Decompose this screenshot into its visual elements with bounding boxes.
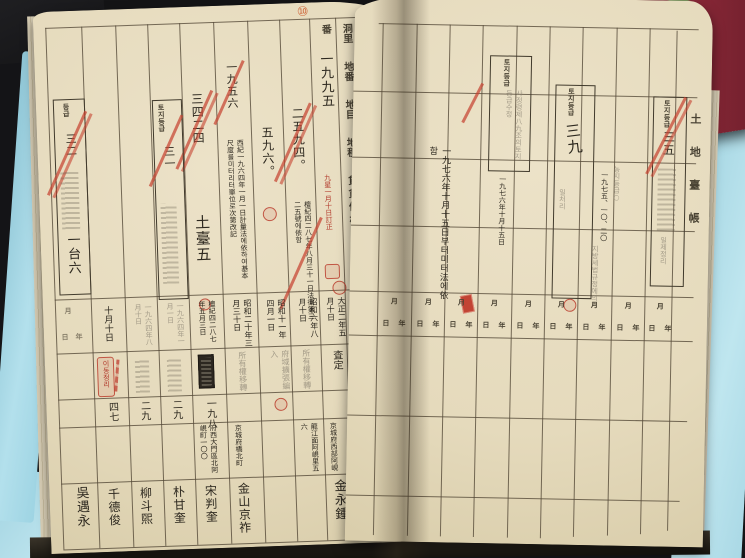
date-cell-day: 日 <box>548 322 558 329</box>
date-cell-month: 月 <box>556 301 566 308</box>
record-1-address: 龍江面阿峴里五六 <box>299 423 321 474</box>
record-7-date: 十月十日 <box>101 306 116 352</box>
record-0-address: 京城府西部阿峴 <box>328 422 340 472</box>
record-6-num: 二九 <box>136 400 152 421</box>
date-cell-day: 日 <box>448 320 458 327</box>
record-0-cause: 査定 <box>329 350 345 371</box>
record-7-name: 千德俊 <box>105 487 123 527</box>
date-cell-month: 月 <box>423 298 433 305</box>
red-seal <box>325 264 341 280</box>
date-cell: 月 日 年 <box>355 0 713 1</box>
date-cell-year: 年 <box>564 323 574 330</box>
grade-box-mid-label: 토지등급 <box>156 104 167 132</box>
date-cell: 月 日 年 <box>355 0 713 1</box>
printed-year: 年 <box>74 333 84 340</box>
grid-line <box>347 415 687 423</box>
date-cell-day: 日 <box>481 321 491 328</box>
faint-pencil-text <box>657 168 676 230</box>
date-cell-year: 年 <box>663 325 673 332</box>
date-cell-month: 月 <box>456 299 466 306</box>
photo-of-land-register: 土地臺帳 ⑩ 洞里 地番 地目 地積 賃貸價格 沿革 年月日 事故 住所 <box>0 0 745 558</box>
date-cell: 月 日 年 <box>355 0 713 1</box>
spine-metric-note: 一九七六年十月十五日부터미터法에依함 <box>429 146 452 306</box>
date-cell-day: 日 <box>615 324 625 331</box>
grid-line <box>407 24 418 536</box>
annex-sub-label: 농지등급○ <box>611 166 622 218</box>
date-cell-day: 日 <box>647 324 657 331</box>
record-5-name: 朴甘奎 <box>170 485 188 525</box>
record-3-date: 昭和二十年三月三十日 <box>231 299 255 348</box>
date-cell-day: 日 <box>581 323 591 330</box>
grid-line <box>115 25 134 547</box>
red-seal <box>263 207 277 221</box>
printed-month: 月 <box>63 307 73 314</box>
large-mark-b: 一台六 <box>62 233 82 276</box>
record-1-cause: 所有權移轉 <box>301 349 313 391</box>
date-cell-year: 年 <box>431 320 441 327</box>
date-cell: 月 日 年 <box>355 0 713 1</box>
form-title: 土地臺帳 <box>685 113 704 245</box>
metric-note: 西紀一九六四年一月一日計量法에依하여基本尺度를미터리터單位로次第改記 <box>219 139 250 286</box>
red-seal <box>274 398 287 411</box>
date-cell-day: 日 <box>381 319 391 326</box>
date-cell-year: 年 <box>631 324 641 331</box>
record-2-cause: 府域擴張編入 <box>269 349 292 392</box>
record-1-date: 昭和六年八月十日 <box>297 297 321 344</box>
date-cell: 月 日 年 <box>355 0 713 1</box>
record-7-num: 四七 <box>104 401 120 422</box>
record-3-address: 京城府橋北町 <box>233 424 245 476</box>
grid-line <box>540 26 551 538</box>
date-cell-month: 月 <box>589 301 599 308</box>
grid-line <box>379 23 699 30</box>
black-stamp <box>198 354 215 389</box>
date-cell-month: 月 <box>523 300 533 307</box>
record-6-name: 柳斗煕 <box>137 486 155 526</box>
record-5-date: 一九六四年一月一日 <box>165 302 187 349</box>
header-village: 洞里 <box>338 23 354 44</box>
date-cell-day: 日 <box>515 322 525 329</box>
grid-line <box>350 291 694 299</box>
record-4-address: 府西大門區北阿峴町一〇〇 <box>198 424 220 479</box>
grid-line <box>607 28 618 536</box>
grid-line <box>351 225 695 233</box>
area-value: 五九六。 <box>259 126 278 179</box>
date-cell-month: 月 <box>389 297 399 304</box>
grid-line <box>346 495 680 502</box>
date-cell-year: 年 <box>497 321 507 328</box>
record-8-name: 吳遇永 <box>71 486 91 529</box>
date-cell-day: 日 <box>415 320 425 327</box>
date-cell: 月 日 年 <box>355 0 713 1</box>
large-mark-a: 土臺五 <box>192 214 215 263</box>
record-2-date: 昭和十一年四月一日 <box>265 299 289 346</box>
date-cell-month: 月 <box>623 302 633 309</box>
record-7-cause-stamp: 이동정리 <box>101 360 112 388</box>
date-cell-year: 年 <box>531 322 541 329</box>
grade-box-a-label: 토지등급 <box>502 58 513 86</box>
stamp-batch: 일제정리 <box>658 236 669 284</box>
red-correction-note: 九星一月十日訂正 <box>322 174 335 260</box>
date-cell-month: 月 <box>489 299 499 306</box>
date-cell-year: 年 <box>597 323 607 330</box>
faint-pencil-text <box>160 203 179 284</box>
grade-box-a-body: 사정령제八九조의토지등급수정 <box>493 89 524 164</box>
record-3-cause: 所有權移轉 <box>237 351 249 393</box>
date-cell: 月 日 年 <box>355 0 713 1</box>
stamp-process: 일처리 <box>556 189 567 249</box>
grid-line <box>373 23 384 535</box>
date-cell: 月 日 年 <box>355 0 713 1</box>
date-cell-year: 年 <box>464 321 474 328</box>
grade-box-b-label: 토지등급 <box>566 88 577 116</box>
faint-pencil-text <box>167 357 182 391</box>
record-5-num: 二九 <box>168 399 184 420</box>
grid-line <box>473 25 484 537</box>
record-3-name: 金山京祚 <box>235 482 254 535</box>
grade-box-left-label: 등급 <box>61 103 71 117</box>
header-ban: 番 <box>317 24 332 35</box>
date-cell-year: 年 <box>397 319 407 326</box>
record-0-date: 大正二年五月十日 <box>325 296 349 343</box>
grade-box-b-value: 三九 <box>562 122 587 156</box>
red-signature <box>114 359 119 391</box>
record-4-date: 檀紀四二八七年五月三日 <box>197 300 219 349</box>
faint-pencil-text <box>60 171 80 230</box>
grid-line <box>349 335 693 343</box>
faint-pencil-text <box>135 358 150 392</box>
date-cell-month: 月 <box>655 302 665 309</box>
right-page[interactable]: 一九七六年十月十五日부터미터法에依함 토지등급 사정령제八九조의토지등급수정 一… <box>345 0 713 547</box>
lot-number: 一九九五 <box>315 52 336 109</box>
grade-box-a-date: 一九七六年十月十五日 <box>496 175 507 245</box>
record-4-name: 宋判奎 <box>202 484 220 524</box>
record-6-date: 一九六四年八月十日 <box>133 303 155 350</box>
printed-day: 日 <box>60 333 70 340</box>
date-cell: 月 日 年 <box>355 0 713 1</box>
